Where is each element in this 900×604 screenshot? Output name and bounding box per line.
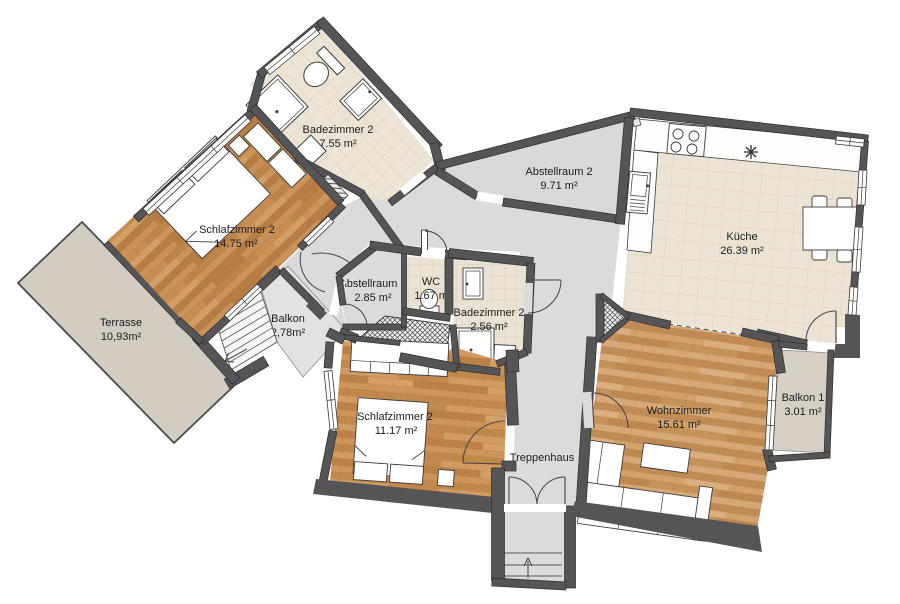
svg-text:9.71 m²: 9.71 m² [540,180,578,192]
svg-text:Terrasse: Terrasse [100,317,142,329]
svg-text:3.01 m²: 3.01 m² [784,406,822,418]
svg-text:Schlafzimmer 2: Schlafzimmer 2 [357,411,433,423]
svg-text:Wohnzimmer: Wohnzimmer [647,405,712,417]
svg-text:10,93m²: 10,93m² [101,331,142,343]
svg-text:26.39 m²: 26.39 m² [720,245,764,257]
svg-text:Badezimmer 2: Badezimmer 2 [303,124,374,136]
svg-text:Balkon 1: Balkon 1 [782,392,825,404]
svg-text:2.56 m²: 2.56 m² [470,321,508,333]
svg-text:Abstellraum 2: Abstellraum 2 [525,166,592,178]
svg-text:WC: WC [422,276,440,288]
svg-text:7.55 m²: 7.55 m² [319,138,357,150]
svg-text:Treppenhaus: Treppenhaus [510,452,575,464]
svg-text:11.17 m²: 11.17 m² [375,425,418,437]
svg-text:15.61 m²: 15.61 m² [657,419,701,431]
svg-text:14.75 m²: 14.75 m² [214,238,258,250]
svg-text:Schlafzimmer 2: Schlafzimmer 2 [199,224,275,236]
svg-text:Balkon: Balkon [271,313,305,325]
svg-text:2,78m²: 2,78m² [271,327,306,339]
svg-text:Badezimmer 2: Badezimmer 2 [454,307,525,319]
svg-text:Abstellraum 1: Abstellraum 1 [339,278,406,290]
svg-text:2.85 m²: 2.85 m² [354,292,392,304]
svg-text:Küche: Küche [726,231,757,243]
